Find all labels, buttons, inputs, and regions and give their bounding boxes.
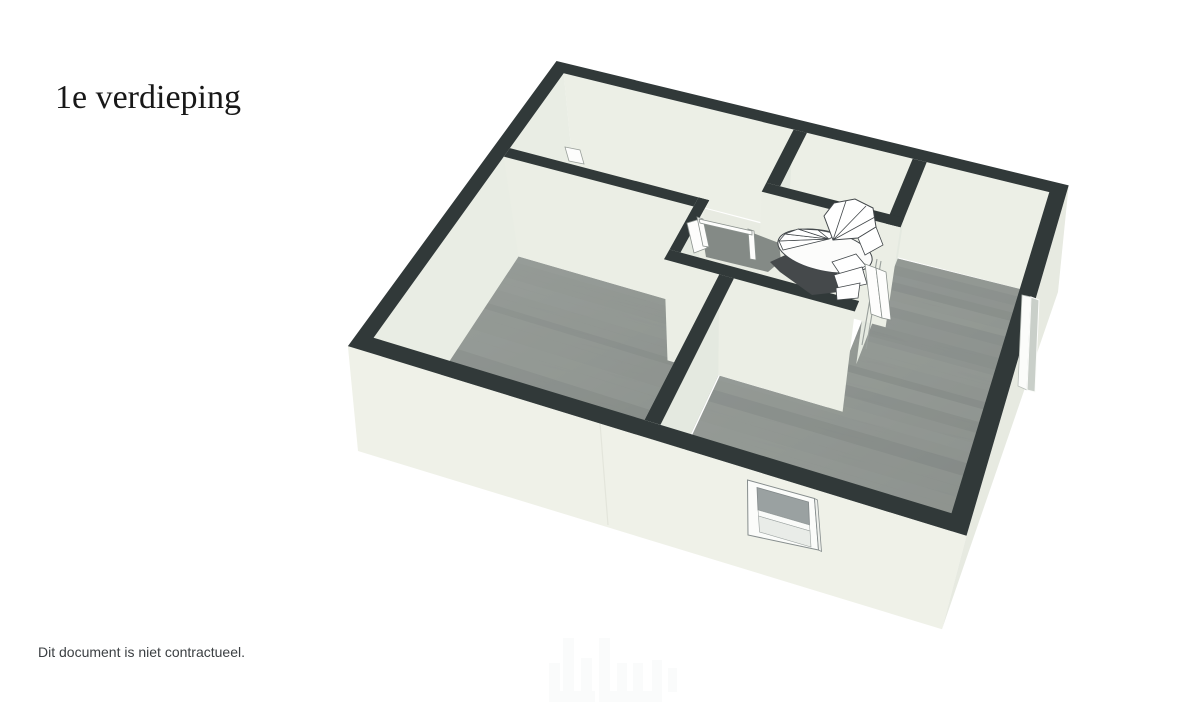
svg-text:Dit document is niet contractu: Dit document is niet contractueel.: [38, 644, 245, 660]
svg-text:1e verdieping: 1e verdieping: [55, 79, 241, 116]
